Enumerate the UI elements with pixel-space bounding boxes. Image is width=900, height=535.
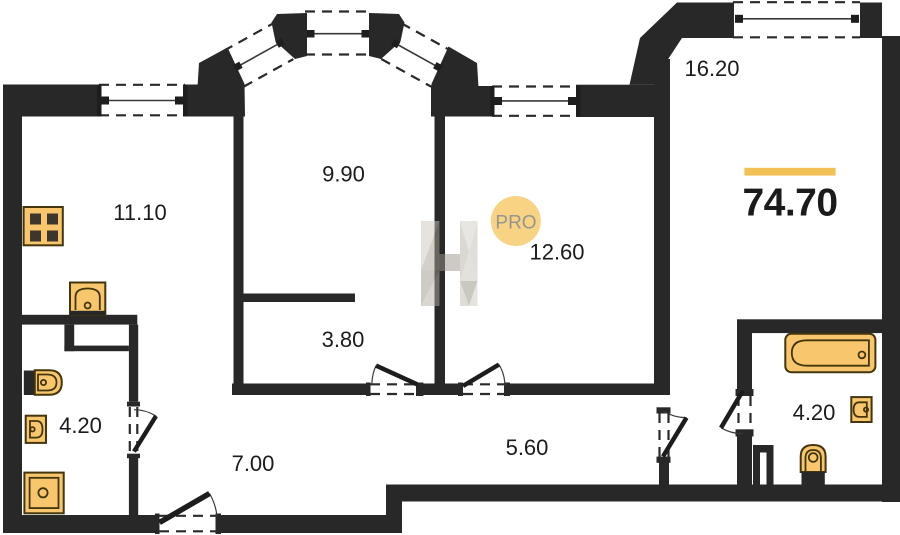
svg-text:4.20: 4.20: [793, 400, 836, 425]
svg-text:4.20: 4.20: [59, 413, 102, 438]
svg-text:7.00: 7.00: [232, 451, 275, 476]
svg-text:11.10: 11.10: [113, 200, 166, 225]
svg-text:12.60: 12.60: [529, 240, 584, 265]
svg-text:PRO: PRO: [495, 213, 536, 234]
svg-text:16.20: 16.20: [684, 56, 739, 81]
svg-text:5.60: 5.60: [506, 435, 549, 460]
svg-text:9.90: 9.90: [322, 162, 365, 187]
svg-text:74.70: 74.70: [742, 182, 837, 225]
svg-text:3.80: 3.80: [322, 327, 365, 352]
